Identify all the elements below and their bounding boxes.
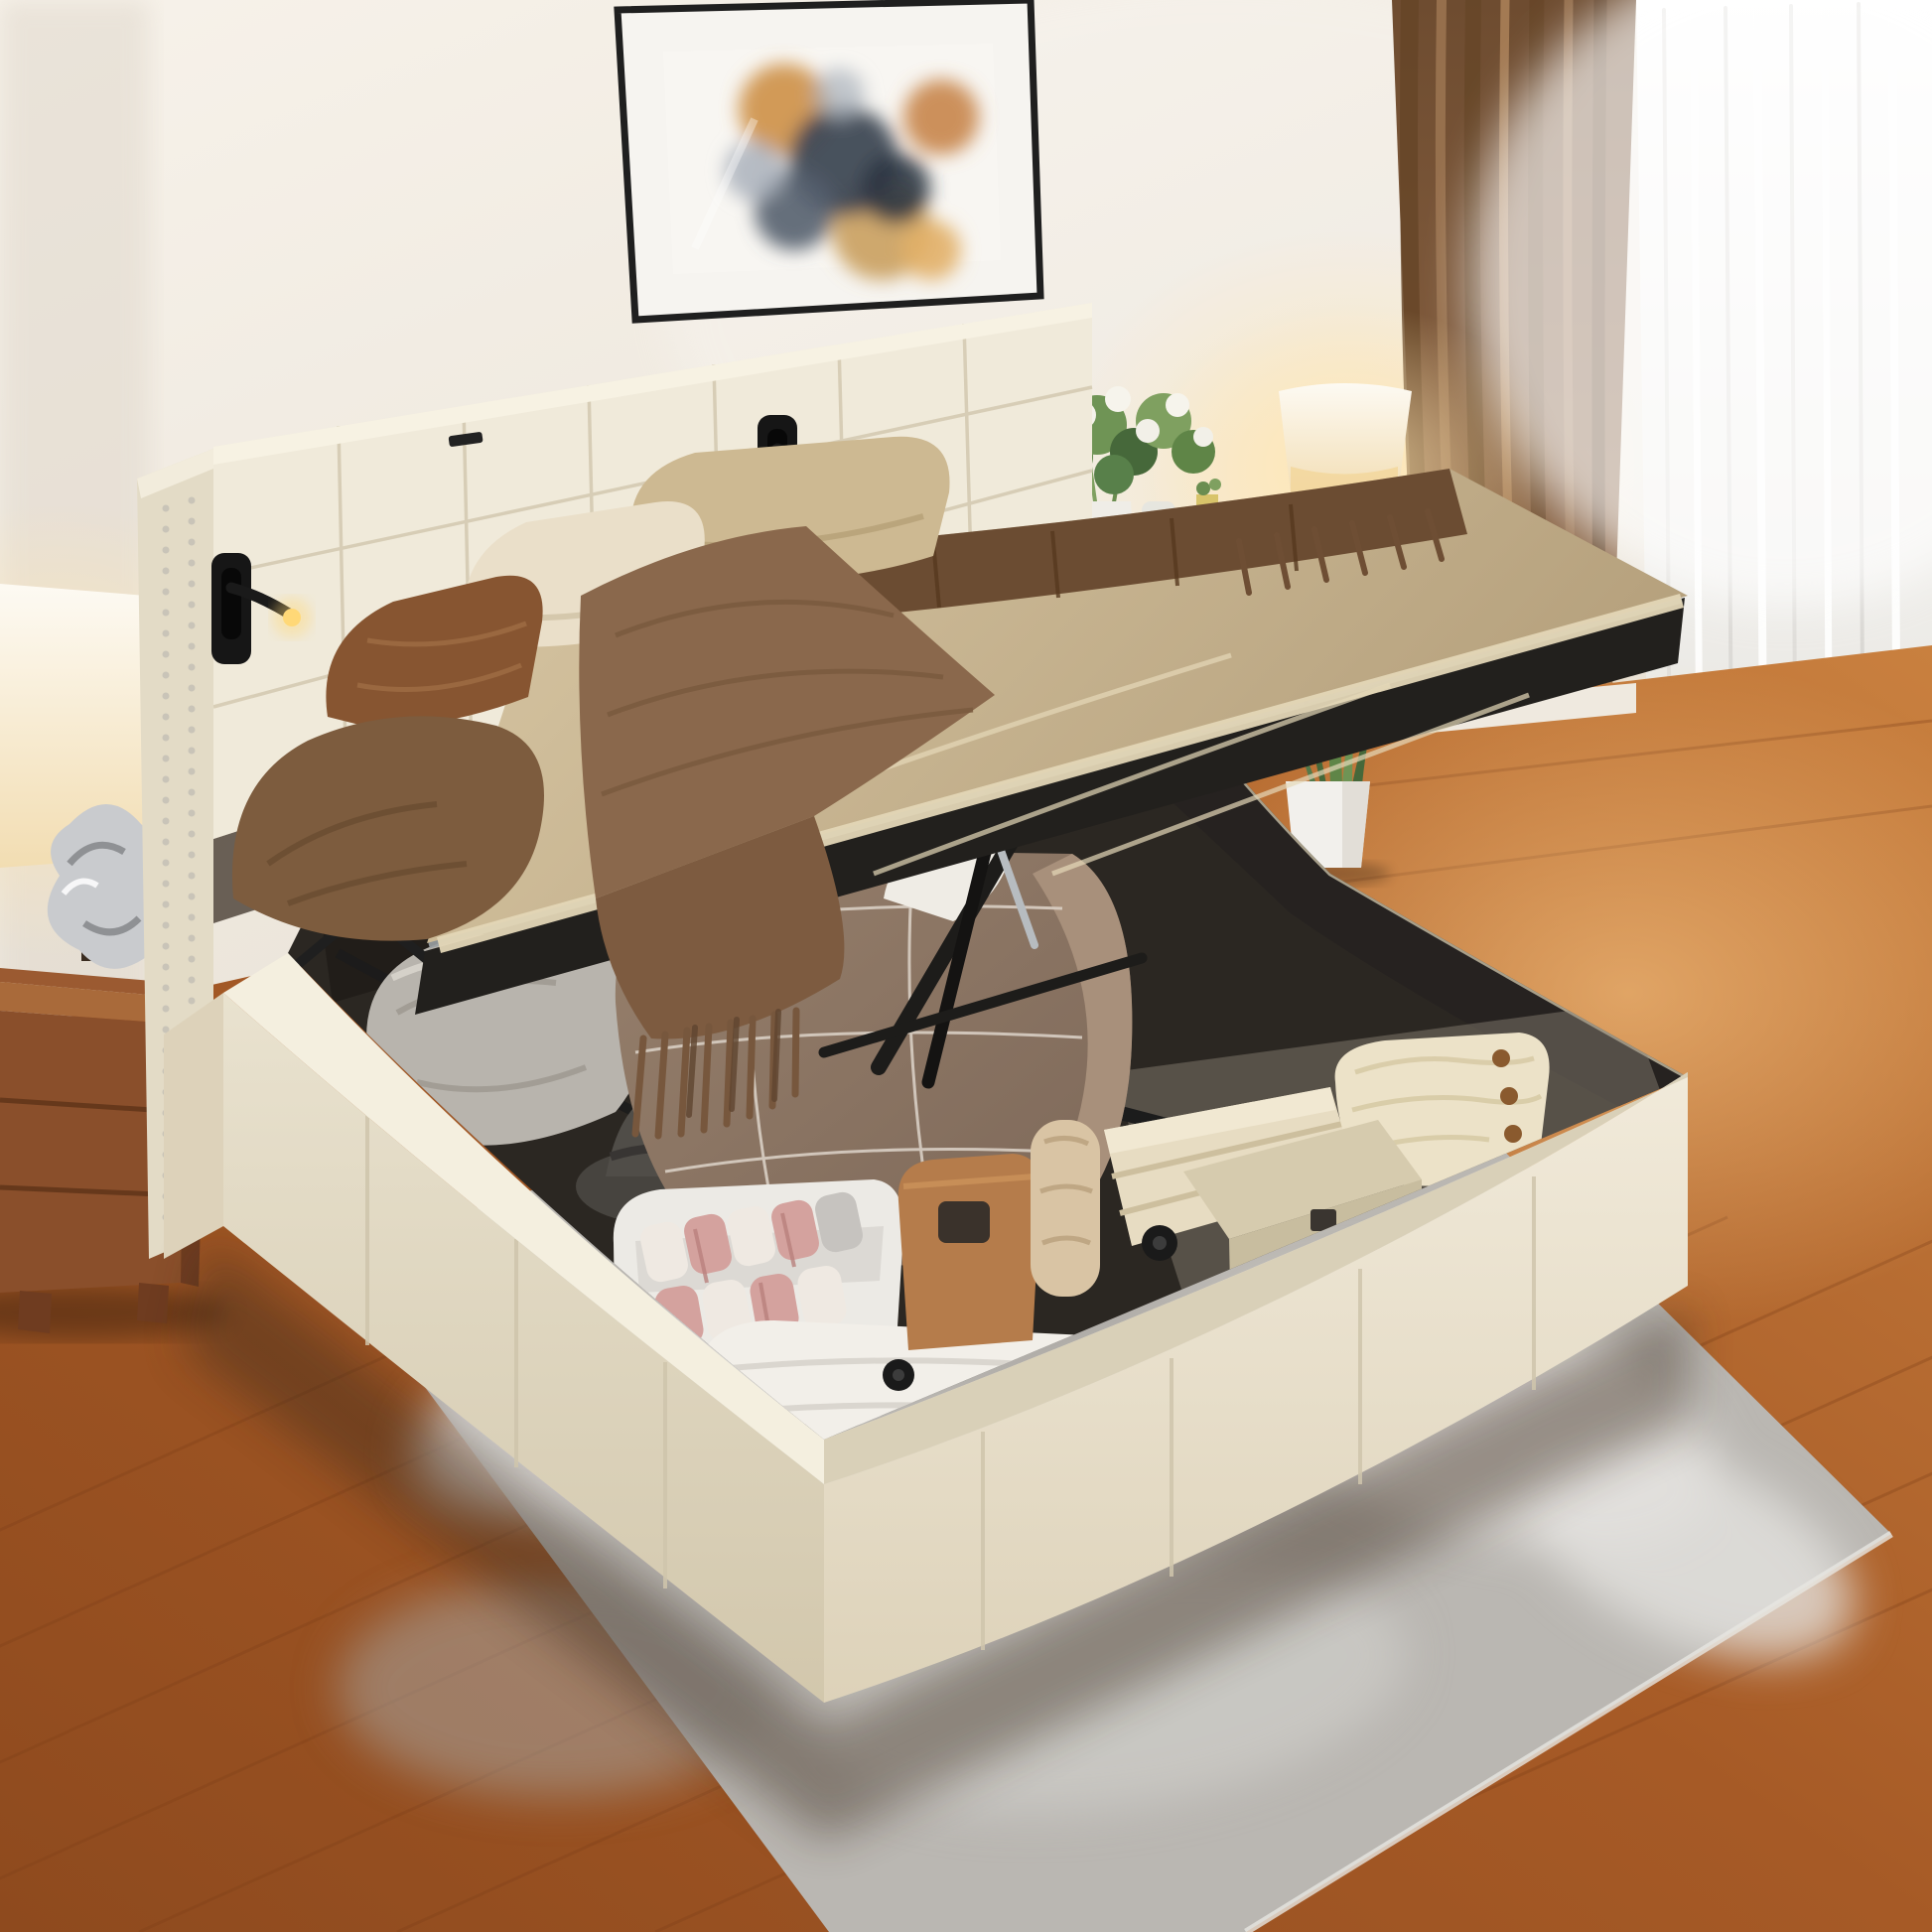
rail-end-cap — [164, 993, 223, 1259]
leather-bag — [898, 1154, 1040, 1350]
wall-art — [618, 0, 1040, 320]
led-glow — [283, 609, 301, 626]
rolled-blanket — [1031, 1120, 1100, 1297]
bedroom-photo — [0, 0, 1932, 1932]
bag-handle-cutout — [938, 1201, 990, 1243]
nightstand-leg — [137, 1283, 169, 1323]
nightstand-leg — [18, 1291, 52, 1333]
scene — [0, 0, 1932, 1932]
